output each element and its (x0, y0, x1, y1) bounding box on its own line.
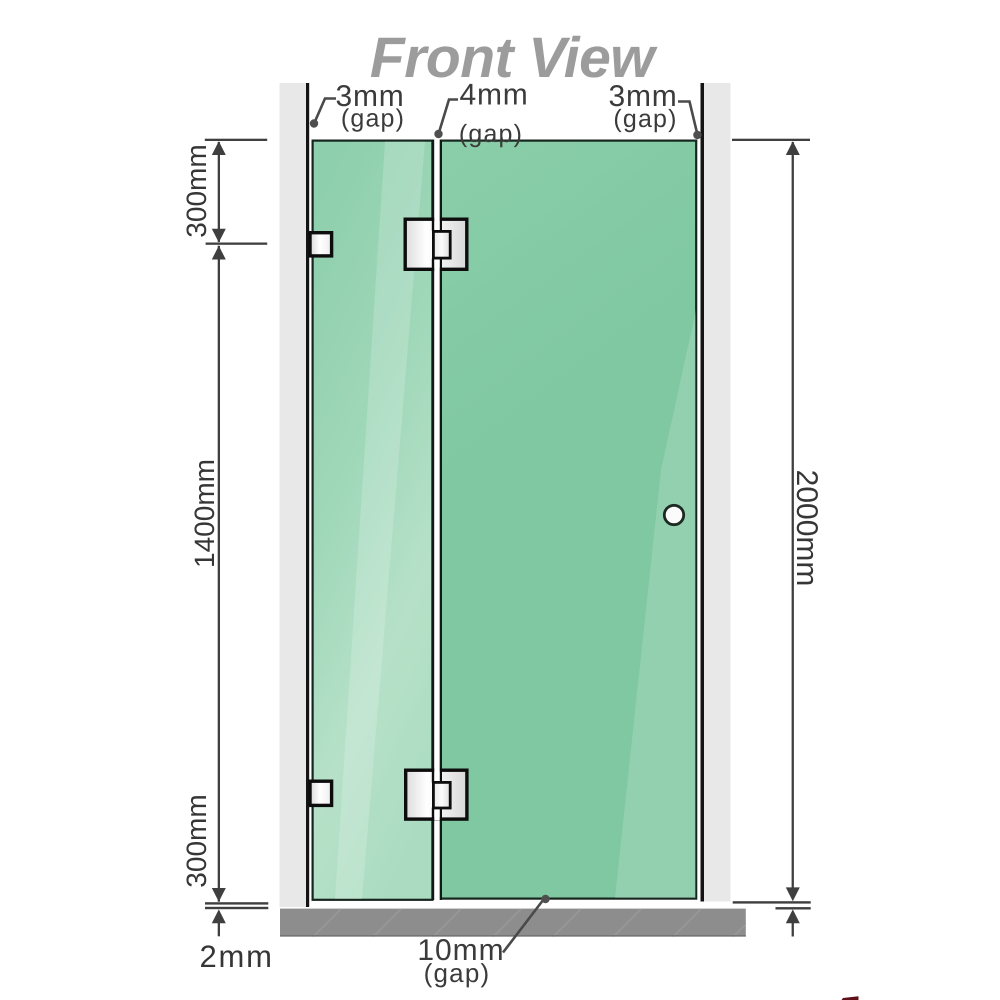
svg-text:(gap): (gap) (613, 105, 677, 133)
svg-text:300mm: 300mm (181, 794, 212, 887)
svg-text:(gap): (gap) (459, 120, 523, 148)
svg-text:2mm: 2mm (199, 939, 273, 974)
svg-text:(gap): (gap) (424, 958, 491, 988)
svg-text:(gap): (gap) (341, 105, 405, 133)
svg-text:4mm: 4mm (459, 79, 528, 112)
svg-text:2000mm: 2000mm (790, 470, 823, 587)
svg-text:300mm: 300mm (181, 144, 212, 237)
svg-text:1400mm: 1400mm (189, 459, 220, 568)
